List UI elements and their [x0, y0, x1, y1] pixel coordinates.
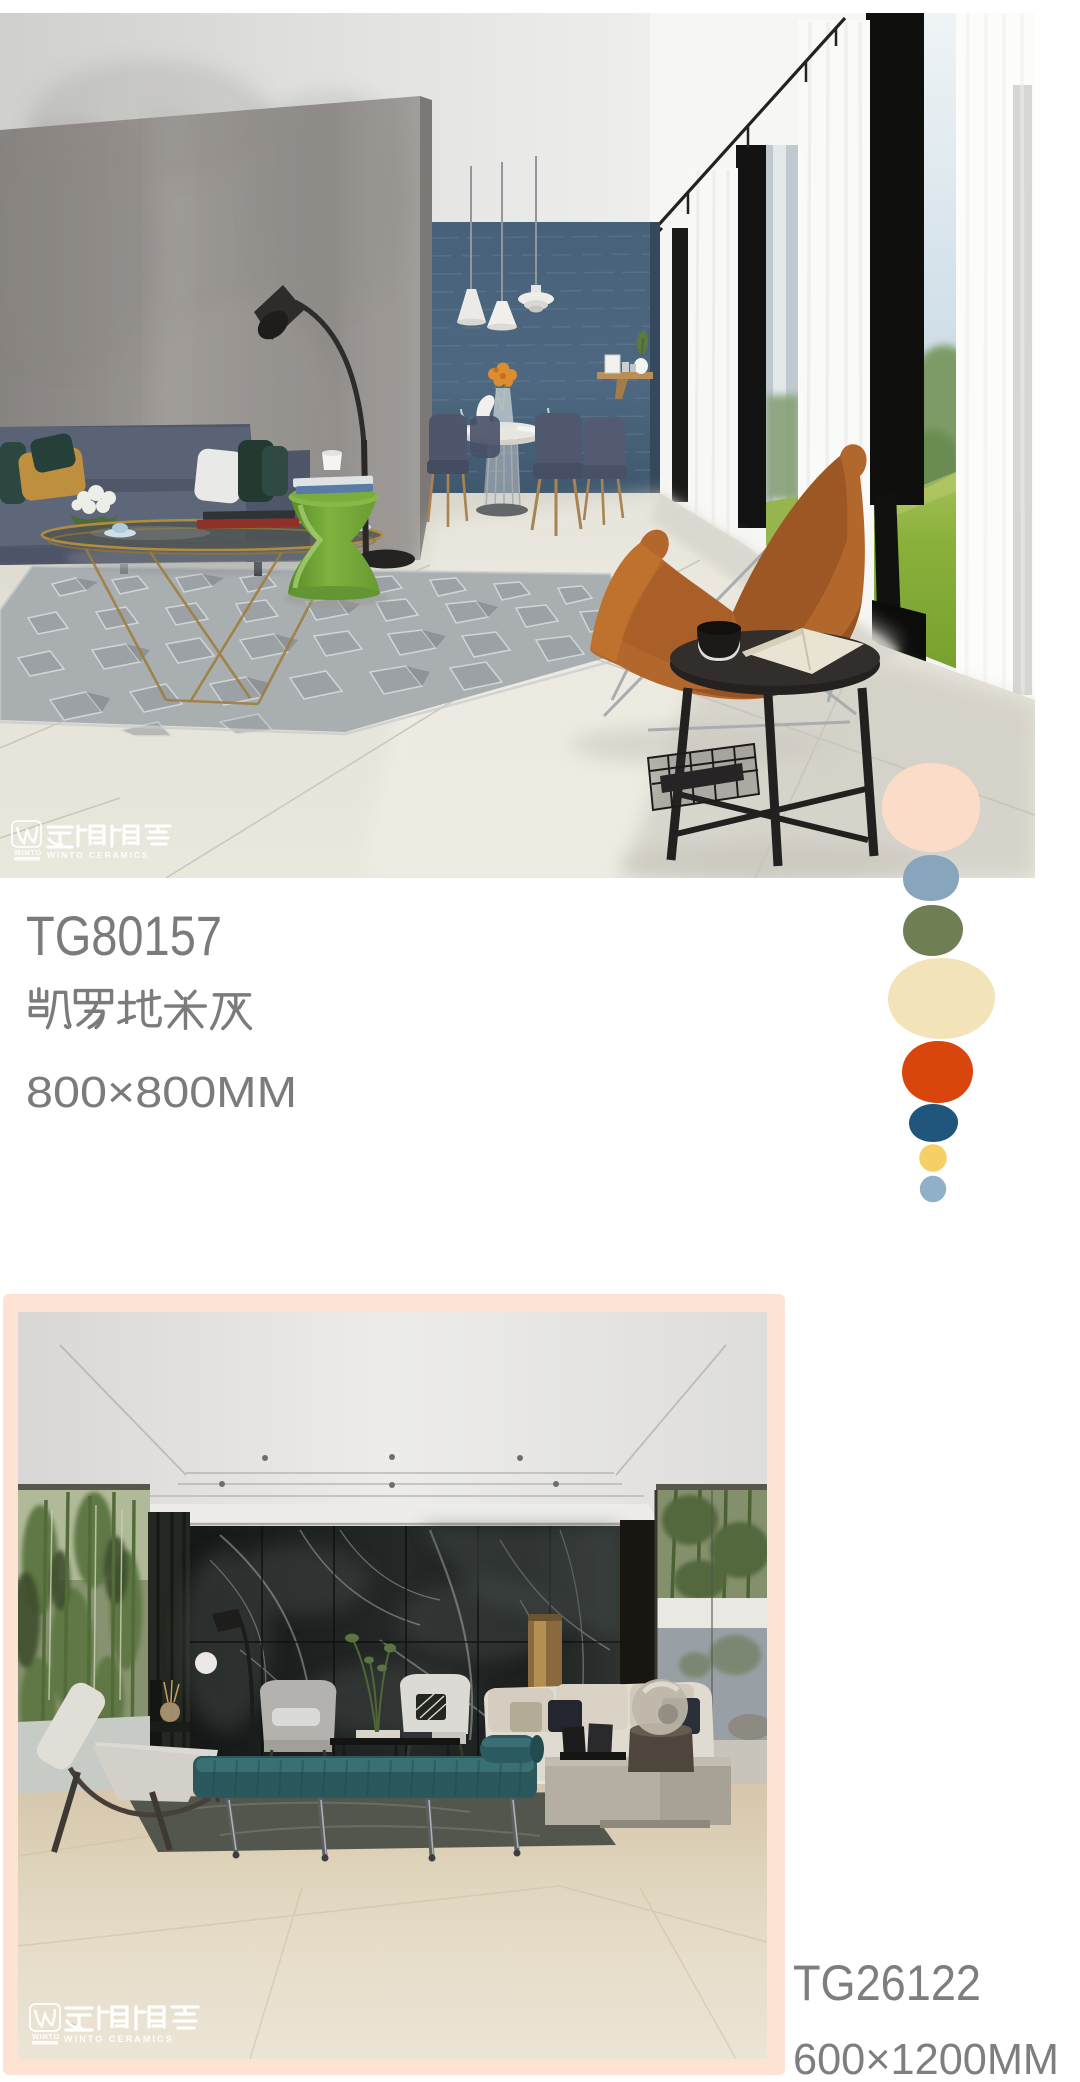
svg-text:WINTO CERAMICS: WINTO CERAMICS	[47, 850, 149, 860]
svg-text:WINTO: WINTO	[14, 848, 42, 857]
svg-text:WINTO: WINTO	[32, 2032, 60, 2041]
svg-text:TG80157: TG80157	[26, 904, 222, 967]
svg-text:WINTO CERAMICS: WINTO CERAMICS	[64, 2034, 174, 2044]
svg-text:800×800MM: 800×800MM	[26, 1068, 297, 1117]
svg-text:TG26122: TG26122	[793, 1955, 981, 2011]
svg-text:600×1200MM: 600×1200MM	[793, 2035, 1059, 2082]
